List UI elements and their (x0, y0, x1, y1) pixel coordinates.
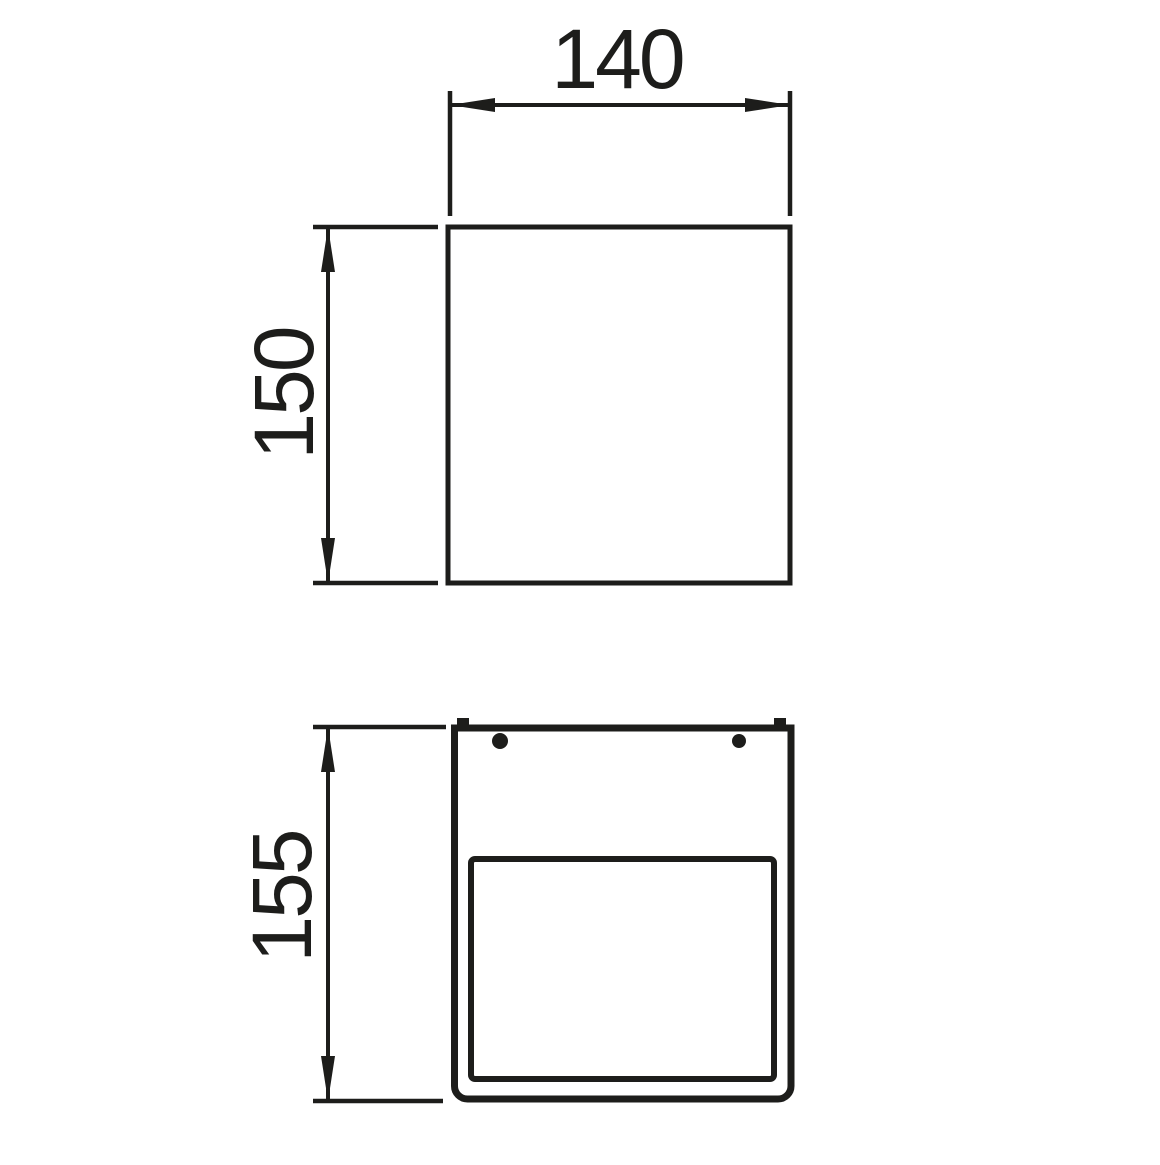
side-height-dimension: 155 (235, 727, 446, 1101)
arrowhead-down-icon (321, 1056, 335, 1101)
width-dimension-label: 140 (551, 12, 682, 106)
side-height-dimension-label: 155 (235, 831, 329, 962)
side-view: 155 (235, 718, 791, 1101)
technical-drawing: 140 150 (0, 0, 1160, 1160)
side-view-outline (455, 728, 792, 1099)
height-dimension-label: 150 (237, 328, 331, 459)
arrowhead-up-icon (321, 727, 335, 772)
width-dimension: 140 (450, 12, 790, 216)
front-view: 140 150 (237, 12, 790, 583)
arrowhead-right-icon (745, 98, 790, 112)
front-view-outline (448, 227, 790, 583)
front-opening-outline (471, 859, 774, 1079)
dimension-drawing-svg: 140 150 (0, 0, 1160, 1160)
arrowhead-left-icon (450, 98, 495, 112)
screw-dot-right (732, 734, 746, 748)
arrowhead-down-icon (321, 538, 335, 583)
arrowhead-up-icon (321, 227, 335, 272)
screw-dot-left (492, 733, 508, 749)
height-dimension: 150 (237, 227, 438, 583)
